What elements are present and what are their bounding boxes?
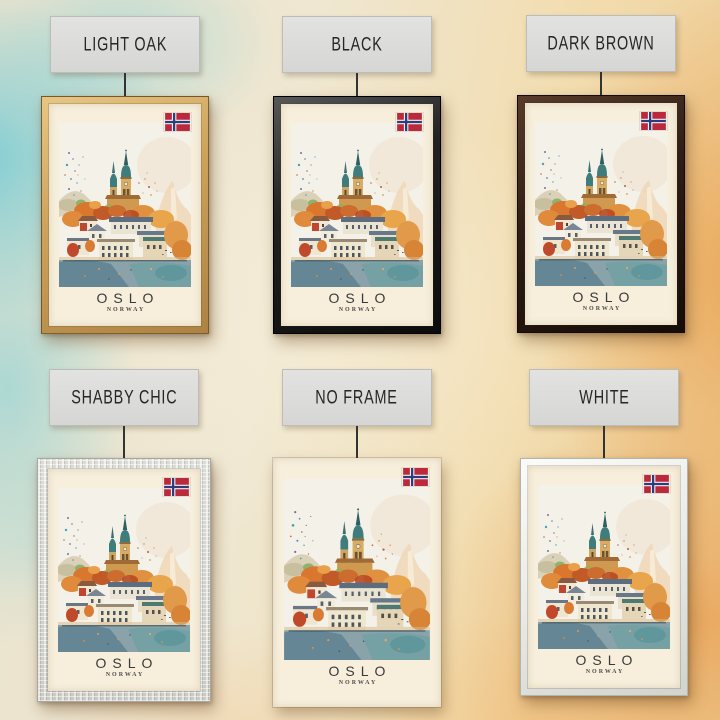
poster-subtitle: NORWAY bbox=[104, 672, 145, 678]
frame-black: OSLO NORWAY bbox=[273, 96, 441, 334]
poster-title: OSLO bbox=[323, 290, 392, 306]
variant-card-dark-brown: DARK BROWN OSLO NORWAY bbox=[511, 15, 691, 333]
poster-title: OSLO bbox=[567, 289, 636, 305]
connector-line bbox=[123, 426, 125, 458]
poster: OSLO NORWAY bbox=[273, 458, 441, 707]
variant-card-white: WHITE OSLO NORWAY bbox=[514, 369, 694, 696]
norway-flag-icon bbox=[163, 478, 190, 496]
poster-subtitle: NORWAY bbox=[581, 306, 622, 312]
variant-label-black: BLACK bbox=[282, 16, 432, 73]
oslo-artwork bbox=[58, 488, 190, 652]
variant-card-shabby-chic: SHABBY CHIC OSLO NORWAY bbox=[34, 369, 214, 702]
poster: OSLO NORWAY bbox=[525, 103, 677, 325]
poster: OSLO NORWAY bbox=[281, 104, 433, 326]
variant-label-text: WHITE bbox=[579, 386, 629, 409]
variant-card-no-frame: NO FRAME OSLO NORWAY bbox=[267, 369, 447, 707]
poster-subtitle: NORWAY bbox=[337, 680, 378, 686]
frame-light-oak: OSLO NORWAY bbox=[41, 96, 209, 334]
variant-label-text: SHABBY CHIC bbox=[71, 386, 177, 409]
variant-card-light-oak: LIGHT OAK OSLO NORWAY bbox=[35, 16, 215, 334]
variant-label-light-oak: LIGHT OAK bbox=[50, 16, 200, 73]
frame-dark-brown: OSLO NORWAY bbox=[517, 95, 685, 333]
norway-flag-icon bbox=[164, 113, 191, 131]
variant-label-text: BLACK bbox=[331, 33, 382, 56]
poster: OSLO NORWAY bbox=[49, 104, 201, 326]
norway-flag-icon bbox=[640, 112, 667, 130]
poster-title: OSLO bbox=[570, 652, 639, 668]
variant-label-text: NO FRAME bbox=[316, 386, 398, 409]
frame-shabby-chic: OSLO NORWAY bbox=[37, 458, 211, 702]
poster-title: OSLO bbox=[91, 290, 160, 306]
poster: OSLO NORWAY bbox=[48, 469, 200, 691]
variant-label-text: LIGHT OAK bbox=[83, 33, 167, 56]
variant-label-dark-brown: DARK BROWN bbox=[526, 15, 676, 72]
variant-card-black: BLACK OSLO NORWAY bbox=[267, 16, 447, 334]
norway-flag-icon bbox=[402, 468, 429, 486]
connector-line bbox=[356, 73, 358, 96]
product-mockup-grid: LIGHT OAK OSLO NORWAY BLACK OSLO NORWAY bbox=[0, 0, 720, 720]
poster-title: OSLO bbox=[90, 655, 159, 671]
frame-none: OSLO NORWAY bbox=[273, 458, 441, 707]
variant-label-no-frame: NO FRAME bbox=[282, 369, 432, 426]
oslo-artwork bbox=[291, 123, 423, 287]
oslo-artwork bbox=[59, 123, 191, 287]
frame-white: OSLO NORWAY bbox=[520, 458, 688, 696]
connector-line bbox=[603, 426, 605, 458]
poster: OSLO NORWAY bbox=[528, 466, 680, 688]
norway-flag-icon bbox=[643, 475, 670, 493]
poster-subtitle: NORWAY bbox=[105, 307, 146, 313]
norway-flag-icon bbox=[396, 113, 423, 131]
variant-label-text: DARK BROWN bbox=[547, 32, 654, 55]
poster-title: OSLO bbox=[323, 663, 392, 679]
poster-subtitle: NORWAY bbox=[584, 669, 625, 675]
variant-label-shabby-chic: SHABBY CHIC bbox=[49, 369, 199, 426]
oslo-artwork bbox=[538, 485, 670, 649]
oslo-artwork bbox=[535, 122, 667, 286]
connector-line bbox=[600, 72, 602, 95]
connector-line bbox=[124, 73, 126, 96]
connector-line bbox=[356, 426, 358, 458]
variant-label-white: WHITE bbox=[529, 369, 679, 426]
poster-subtitle: NORWAY bbox=[337, 307, 378, 313]
oslo-artwork bbox=[284, 479, 430, 660]
